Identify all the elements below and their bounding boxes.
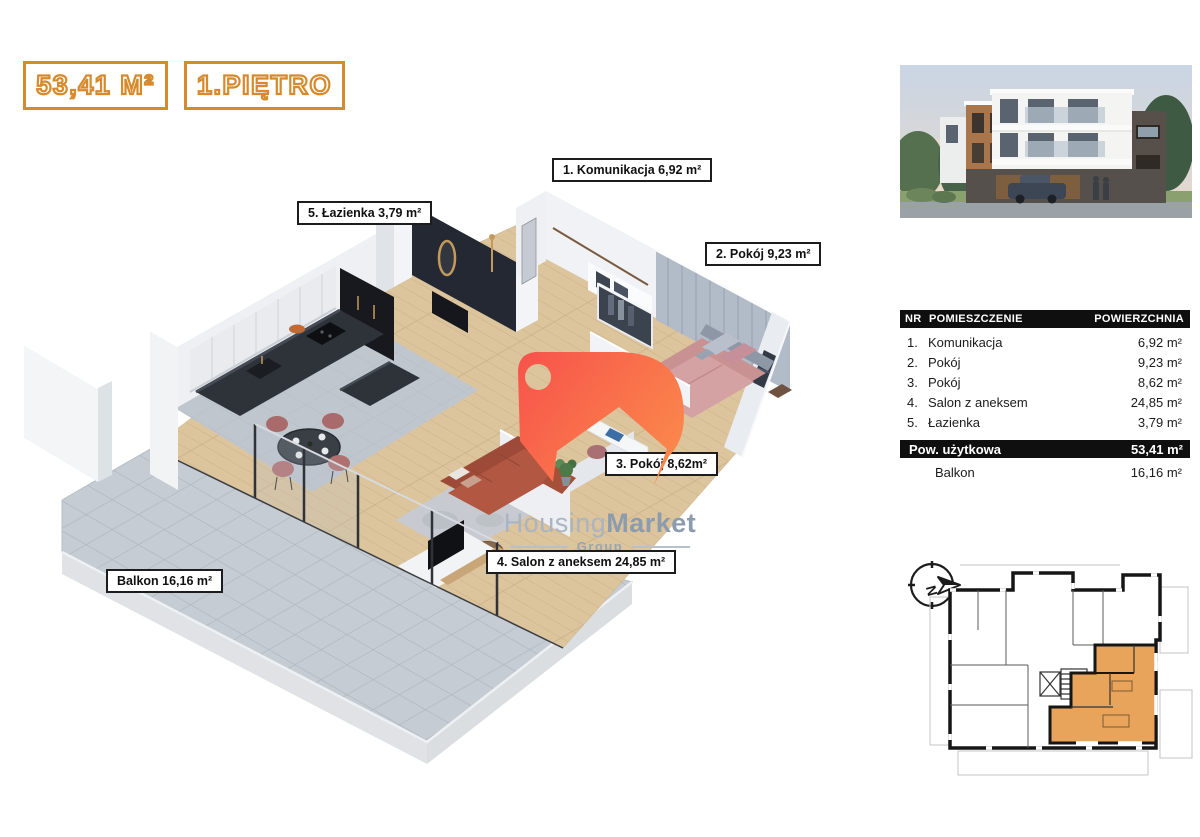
fruit-bowl [289,325,305,334]
header-area: POWIERZCHNIA [1094,313,1190,325]
table-row: 4. Salon z aneksem 24,85 m² [900,392,1190,412]
table-row: 1. Komunikacja 6,92 m² [900,332,1190,352]
plan-label-lazienka: 5. Łazienka 3,79 m² [297,201,432,225]
header-room: POMIESZCZENIE [929,313,1023,325]
compass-letter: N [923,584,941,598]
hall-door [522,218,536,284]
floor-plan-3d [0,0,900,837]
west-walls [24,330,178,490]
logo-wordmark: HousingMarket Group [478,510,722,554]
balcony-row: Balkon 16,16 m² [900,463,1190,481]
table-row: 5. Łazienka 3,79 m² [900,412,1190,432]
header-nr: NR [900,313,929,325]
logo-brand-light: Housing [504,508,607,538]
building-photo [900,65,1192,218]
logo-rule-right [632,546,690,548]
plan-label-pokoj2: 2. Pokój 9,23 m² [705,242,821,266]
rooms-table: NR POMIESZCZENIE POWIERZCHNIA 1. Komunik… [900,310,1190,481]
table-row: 2. Pokój 9,23 m² [900,352,1190,372]
plan-label-komunikacja: 1. Komunikacja 6,92 m² [552,158,712,182]
table-row: 3. Pokój 8,62 m² [900,372,1190,392]
usable-area-summary-row: Pow. użytkowa 53,41 m² [900,440,1190,458]
plan-label-balkon: Balkon 16,16 m² [106,569,223,593]
housingmarket-logo-tag-icon [505,340,705,500]
schematic-plan: N [898,545,1198,785]
logo-rule-left [510,546,568,548]
table-header-row: NR POMIESZCZENIE POWIERZCHNIA [900,310,1190,328]
plan-label-salon: 4. Salon z aneksem 24,85 m² [486,550,676,574]
bathroom-mirror [439,241,455,275]
logo-brand-bold: Market [606,508,696,538]
